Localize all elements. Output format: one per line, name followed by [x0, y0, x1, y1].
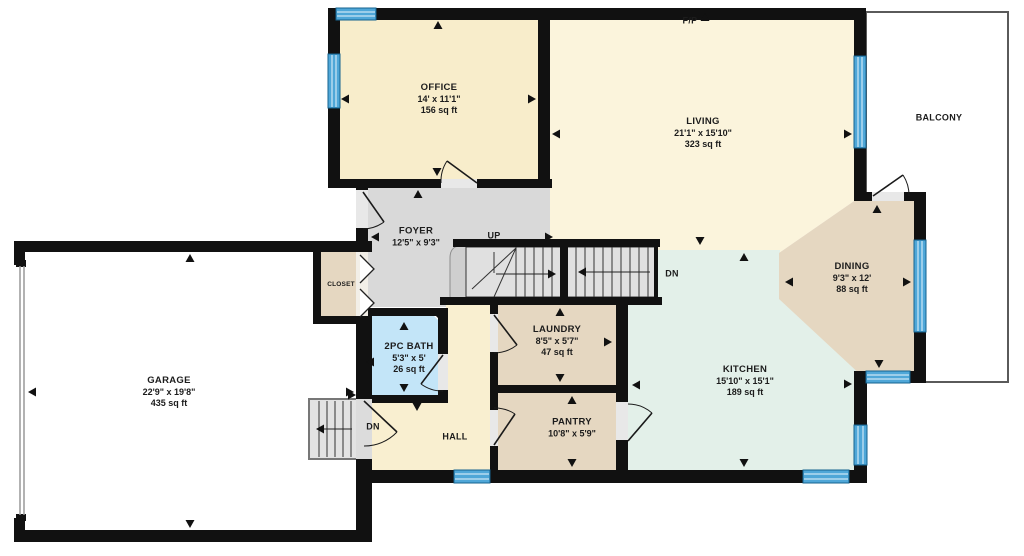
- closet-area: [321, 252, 360, 318]
- office-left-window: [328, 54, 340, 108]
- kitchen-right-window: [854, 425, 867, 465]
- living-area: [544, 14, 862, 253]
- staircase-up: [450, 243, 562, 302]
- office-area: [336, 16, 542, 183]
- hall-bottom-window: [454, 470, 490, 483]
- kitchen-bottom-window: [803, 470, 849, 483]
- office-top-window: [336, 8, 376, 20]
- dining-bottom-window: [866, 371, 910, 383]
- floor-plan-canvas: [0, 0, 1024, 556]
- living-right-window: [854, 56, 866, 148]
- dining-right-window: [914, 240, 926, 332]
- pantry-area: [498, 390, 616, 472]
- floor-plan: OFFICE 14' x 11'1" 156 sq ft LIVING 21'1…: [0, 0, 1024, 556]
- garage-area: [20, 247, 360, 532]
